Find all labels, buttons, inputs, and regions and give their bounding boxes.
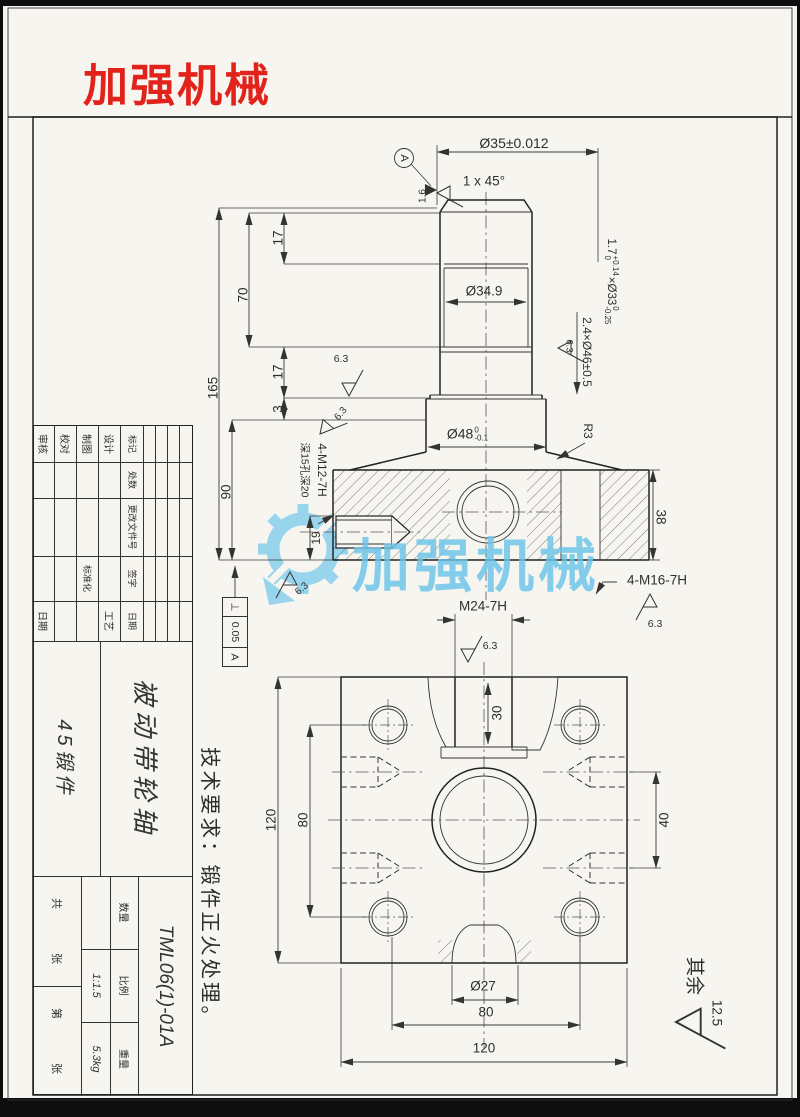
dim-17b: 17	[271, 364, 286, 379]
sig-check: 校对	[55, 426, 77, 462]
dim-3: 3	[271, 405, 286, 413]
drawing-stage: 加强机械 加强机械 A 1.6 Ø35±0.012 1 x 45° Ø34.9 …	[0, 0, 800, 1117]
m12-depth-note: 深15孔深20	[298, 443, 313, 498]
plan-view-dimensions	[278, 614, 661, 1067]
roughness-63-step: 6.3	[334, 353, 349, 365]
sig-process: 工艺	[99, 601, 121, 641]
watermark-text: 加强机械	[352, 519, 600, 603]
dim-19: 19	[309, 531, 323, 544]
dim-120-left: 120	[264, 809, 279, 832]
technical-requirements: 技术要求：锻件正火处理。	[197, 747, 227, 1029]
gdt-datum-cell: A	[222, 648, 248, 667]
rev-header-date: 日期	[121, 601, 144, 641]
d48-dn: -0.1	[474, 435, 488, 443]
weight-value: 5.3kg	[82, 1022, 111, 1096]
dim-70: 70	[236, 287, 251, 302]
sig-draft: 制图	[77, 426, 99, 462]
gdt-datum-ref: A	[229, 653, 241, 660]
company-logo: 加强机械	[83, 49, 271, 114]
dim-165: 165	[206, 377, 221, 400]
title-block-table: 标记 处数 更改文件号 签字 日期 设计 制图 校对 审核 工艺 标准化 日期 …	[33, 425, 193, 1095]
rest-roughness-value: 12.5	[710, 1000, 725, 1026]
rest-label: 其余	[683, 957, 710, 995]
sig-date: 日期	[32, 601, 55, 641]
gdt-symbol-cell: ⊥	[222, 597, 248, 617]
groove1-note: 1.7+0.140×Ø330-0.25	[603, 239, 619, 326]
sig-audit: 审核	[32, 426, 55, 462]
gdt-value-cell: 0.05	[222, 617, 248, 648]
rev-header-count: 处数	[121, 462, 144, 498]
sheet-gong: 共	[49, 898, 65, 909]
groove1-wdn: 0	[603, 256, 611, 276]
dim-80-left: 80	[296, 812, 311, 827]
sheet-di: 第	[49, 1008, 65, 1019]
chamfer-note: 1 x 45°	[463, 174, 505, 189]
roughness-63-m24: 6.3	[483, 640, 498, 652]
drawing-number: TML06(1)-01A	[139, 876, 192, 1096]
dim-d27: Ø27	[470, 979, 496, 994]
roughness-63-groove: 6.3	[564, 339, 575, 352]
qty-label: 数量	[111, 876, 139, 949]
dim-80-bottom: 80	[478, 1005, 493, 1020]
m24-label: M24-7H	[459, 599, 507, 614]
roughness-16: 1.6	[418, 189, 429, 203]
part-name: 被动带轮轴	[101, 641, 192, 876]
sheet-total: 共 张	[32, 876, 82, 986]
datum-label: A	[398, 154, 410, 161]
rev-header-mark: 标记	[121, 426, 144, 462]
weight-label: 重量	[111, 1022, 139, 1096]
scale-label: 比例	[111, 949, 139, 1022]
dim-d48: Ø480-0.1	[447, 425, 489, 442]
groove2-note: 2.4×Ø46±0.5	[580, 317, 594, 387]
groove1-dia: ×Ø33	[605, 277, 617, 305]
material: 45锻件	[32, 641, 101, 876]
dim-30: 30	[490, 705, 505, 720]
dim-38: 38	[654, 509, 669, 524]
sig-standard: 标准化	[77, 556, 99, 601]
gdt-value: 0.05	[229, 622, 241, 642]
groove1-dup: 0	[611, 306, 619, 324]
dim-17a: 17	[271, 230, 286, 245]
groove1-wup: +0.14	[611, 256, 619, 276]
rev-header-sign: 签字	[121, 556, 144, 601]
sig-design: 设计	[99, 426, 121, 462]
sheet-current: 第 张	[32, 986, 82, 1096]
rev-header-docno: 更改文件号	[121, 498, 144, 556]
groove1-width: 1.7	[605, 239, 617, 255]
groove1-ddn: -0.25	[603, 306, 611, 324]
perpendicularity-icon: ⊥	[229, 602, 241, 611]
m16-label: 4-M16-7H	[627, 573, 687, 588]
m12-label: 4-M12-7H	[315, 443, 329, 496]
gdt-frame: ⊥ 0.05 A	[222, 597, 248, 667]
sheet-zhang1: 张	[49, 953, 65, 964]
scale-value: 1:1.5	[82, 949, 111, 1022]
dim-d349: Ø34.9	[466, 284, 503, 299]
title-block: 标记 处数 更改文件号 签字 日期 设计 制图 校对 审核 工艺 标准化 日期 …	[33, 425, 193, 1095]
sheet-zhang2: 张	[49, 1063, 65, 1074]
roughness-63-m16: 6.3	[648, 618, 663, 630]
d48-base: Ø48	[447, 425, 473, 441]
fillet-r3: R3	[581, 423, 595, 438]
dim-120-bottom: 120	[473, 1041, 496, 1056]
dim-90: 90	[219, 484, 234, 499]
dim-d35: Ø35±0.012	[479, 135, 548, 151]
dim-40: 40	[657, 812, 672, 827]
